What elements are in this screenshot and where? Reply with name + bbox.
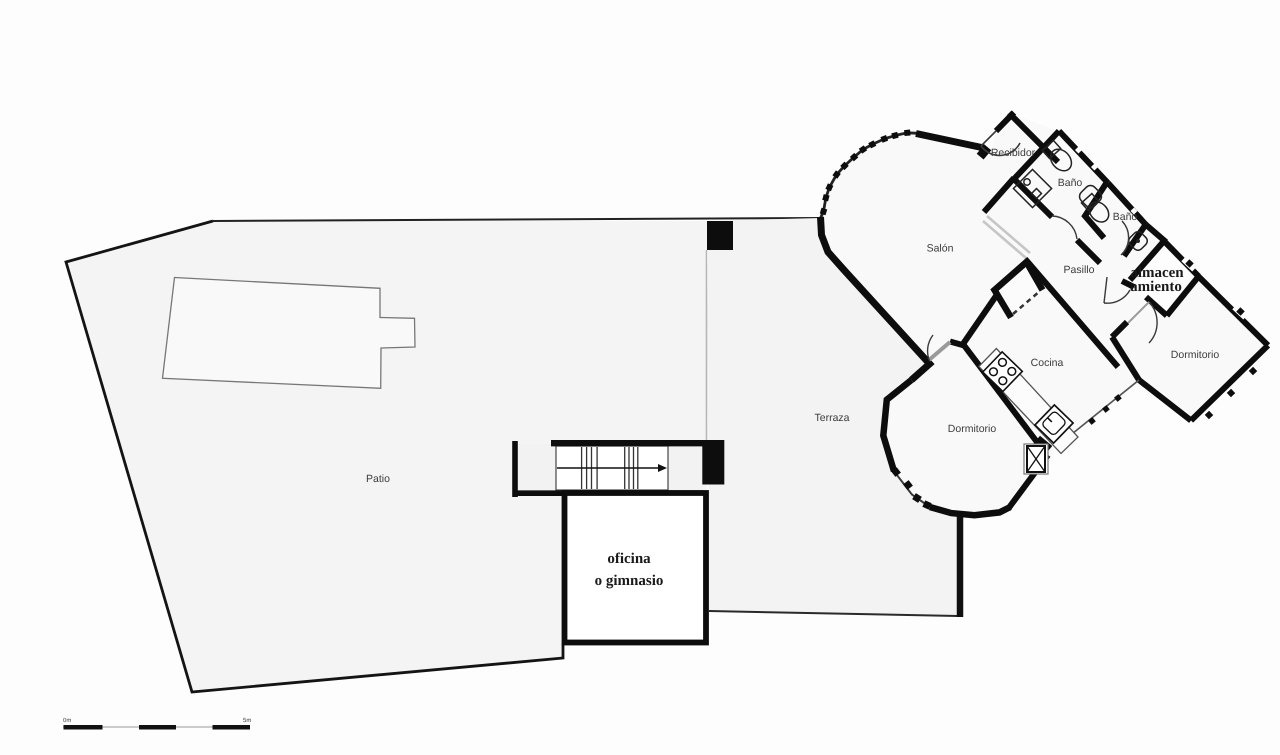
svg-text:o gimnasio: o gimnasio [595,573,664,589]
svg-text:Terraza: Terraza [814,412,849,424]
svg-text:0m: 0m [63,717,71,724]
svg-text:Pasillo: Pasillo [1064,264,1095,276]
svg-text:Patio: Patio [366,473,390,485]
svg-text:Baño: Baño [1058,177,1083,189]
svg-text:oficina: oficina [607,551,651,567]
svg-text:5m: 5m [243,717,251,724]
svg-text:Recibidor: Recibidor [991,147,1036,159]
svg-text:Cocina: Cocina [1031,357,1064,369]
svg-text:Dormitorio: Dormitorio [948,423,997,435]
svg-text:amiento: amiento [1130,279,1182,295]
svg-text:Salón: Salón [927,243,954,255]
svg-text:Dormitorio: Dormitorio [1171,349,1220,361]
svg-text:Baño: Baño [1113,211,1138,223]
